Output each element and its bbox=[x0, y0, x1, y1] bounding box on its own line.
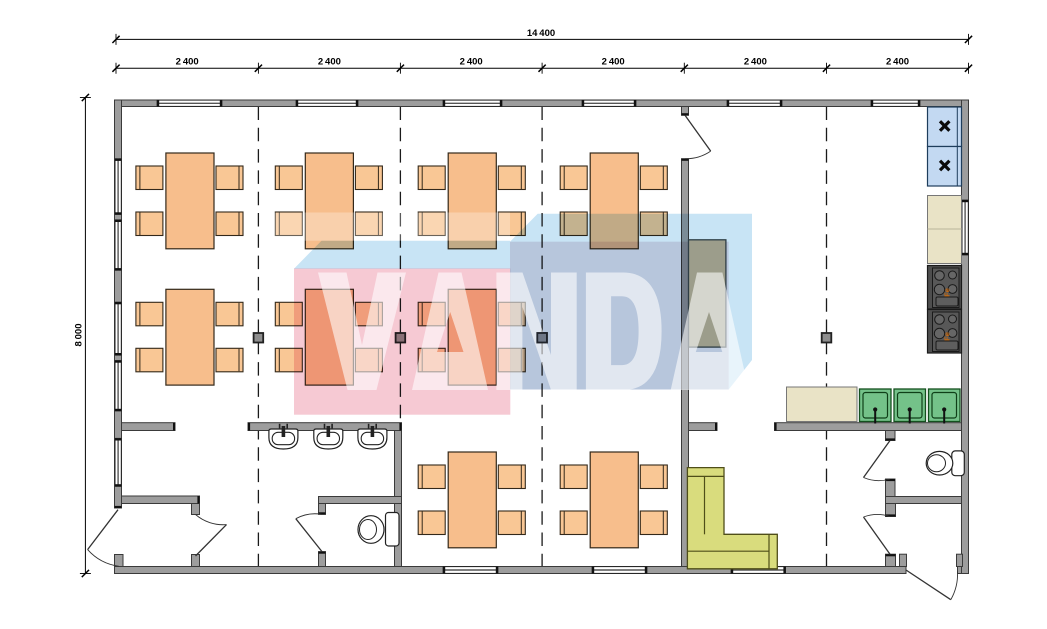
svg-text:2 400: 2 400 bbox=[744, 57, 767, 68]
svg-text:14 400: 14 400 bbox=[527, 28, 555, 39]
svg-text:2 400: 2 400 bbox=[318, 57, 341, 68]
svg-text:2 400: 2 400 bbox=[460, 57, 483, 68]
svg-text:2 400: 2 400 bbox=[602, 57, 625, 68]
svg-text:8 000: 8 000 bbox=[74, 323, 85, 346]
svg-text:Fe: Fe bbox=[943, 332, 952, 341]
svg-text:2 400: 2 400 bbox=[176, 57, 199, 68]
svg-text:Fe: Fe bbox=[943, 288, 952, 297]
svg-text:2 400: 2 400 bbox=[886, 57, 909, 68]
